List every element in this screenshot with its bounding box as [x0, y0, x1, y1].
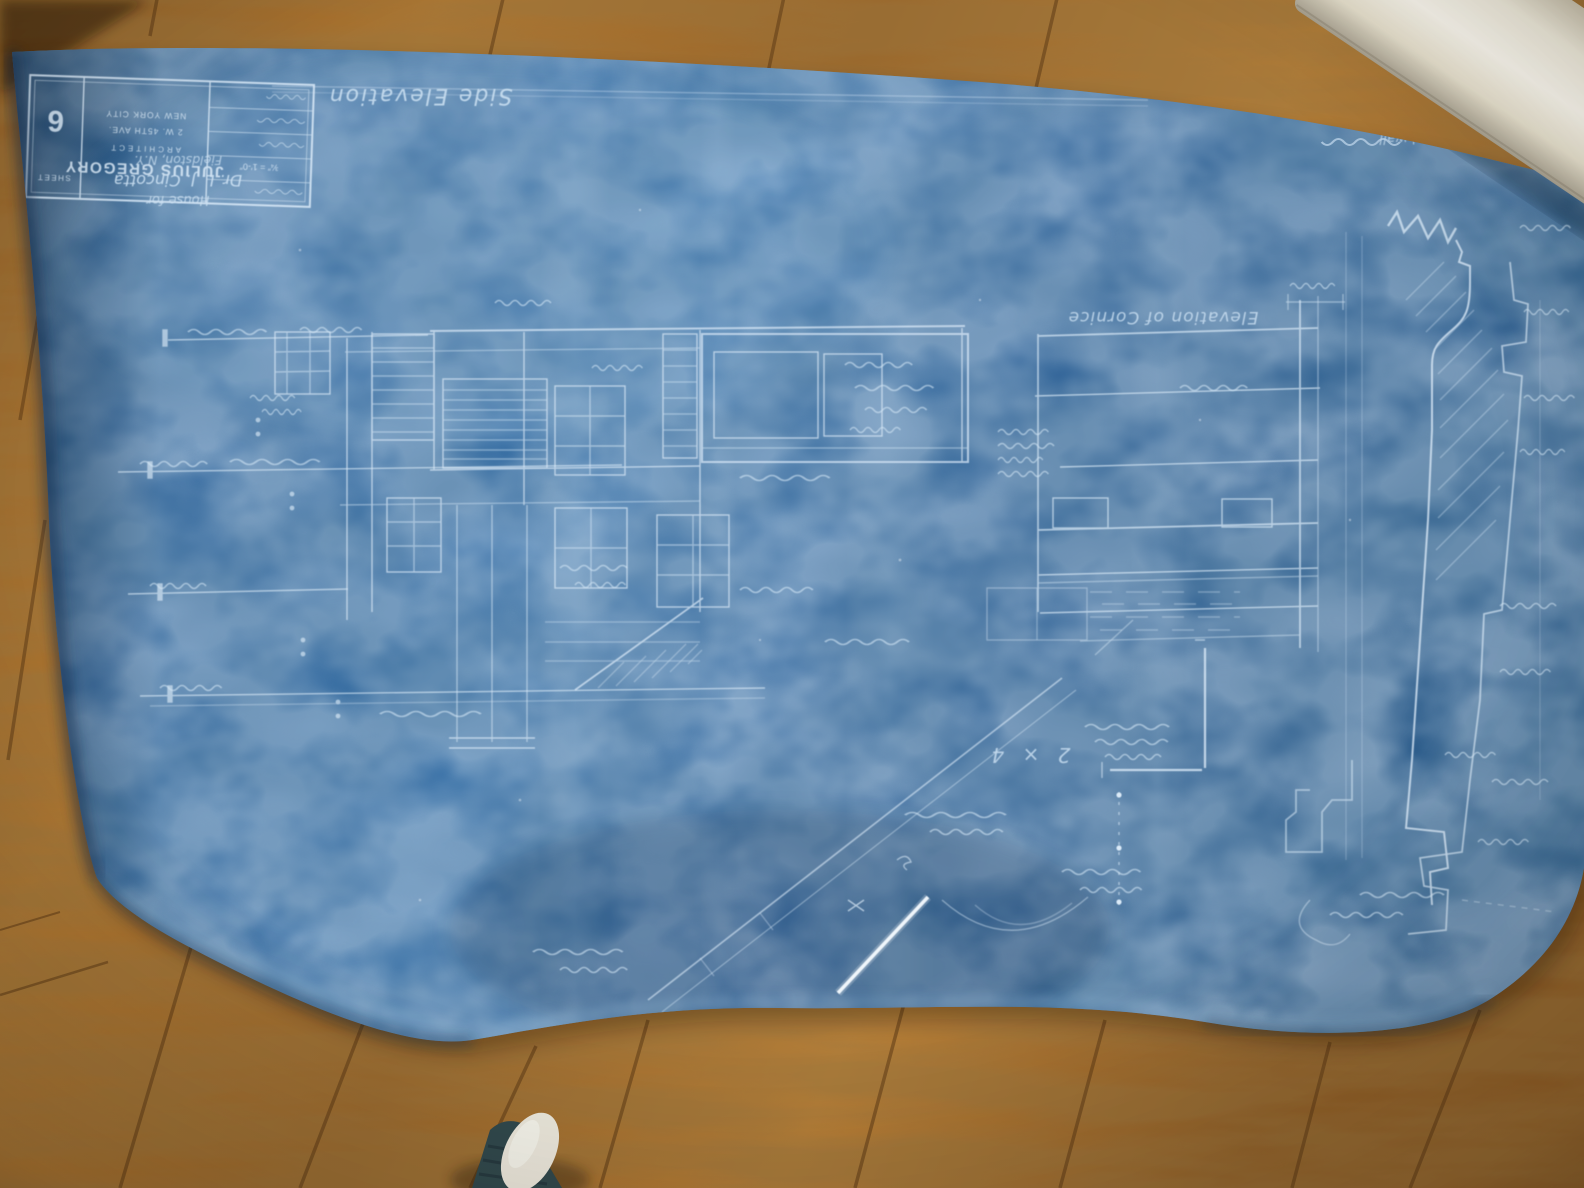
- photo-of-blueprint: Side Elevation Elevation of Cornice Sect…: [0, 0, 1584, 1188]
- photo-vignette: [0, 0, 1584, 1188]
- photo-scene: Side Elevation Elevation of Cornice Sect…: [0, 0, 1584, 1188]
